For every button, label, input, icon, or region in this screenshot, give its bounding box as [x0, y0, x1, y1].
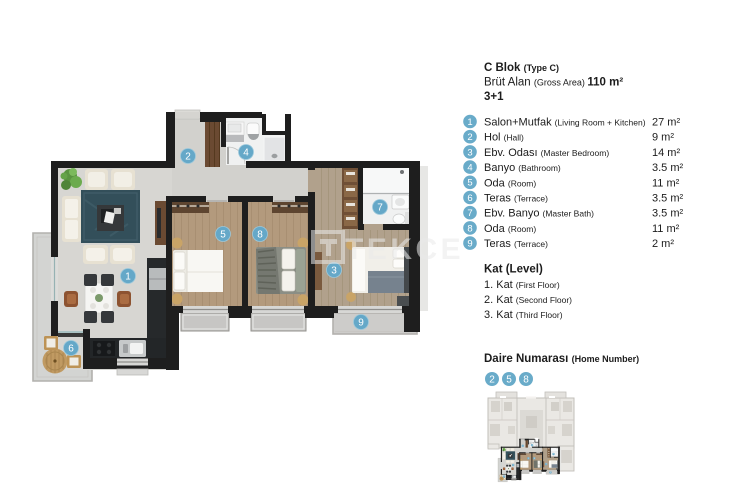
svg-text:11 m²: 11 m² — [652, 223, 680, 235]
svg-text:Ebv. Odası (Master Bedroom): Ebv. Odası (Master Bedroom) — [484, 147, 609, 159]
svg-text:2: 2 — [489, 375, 495, 386]
svg-text:3: 3 — [467, 147, 472, 158]
svg-text:Hol (Hall): Hol (Hall) — [484, 132, 524, 144]
svg-text:3.5 m²: 3.5 m² — [652, 162, 684, 174]
svg-text:Brüt Alan (Gross Area) 110 m²: Brüt Alan (Gross Area) 110 m² — [484, 77, 623, 89]
svg-text:3. Kat (Third Floor): 3. Kat (Third Floor) — [484, 309, 563, 321]
svg-text:11 m²: 11 m² — [652, 177, 680, 189]
svg-text:Daire Numarası (Home Number): Daire Numarası (Home Number) — [484, 353, 639, 365]
svg-text:TEKCE: TEKCE — [345, 233, 464, 266]
svg-text:27 m²: 27 m² — [652, 117, 680, 129]
svg-text:3.5 m²: 3.5 m² — [652, 193, 684, 205]
svg-text:Ebv. Banyo (Master Bath): Ebv. Banyo (Master Bath) — [484, 208, 594, 220]
svg-text:1: 1 — [467, 117, 472, 128]
svg-text:C Blok (Type C): C Blok (Type C) — [484, 62, 559, 74]
svg-text:6: 6 — [467, 193, 472, 204]
svg-text:Oda (Room): Oda (Room) — [484, 223, 536, 235]
svg-text:5: 5 — [506, 375, 512, 386]
svg-text:7: 7 — [467, 208, 472, 219]
svg-text:Banyo (Bathroom): Banyo (Bathroom) — [484, 162, 561, 174]
svg-text:Oda (Room): Oda (Room) — [484, 177, 536, 189]
svg-text:8: 8 — [523, 375, 529, 386]
svg-text:Kat (Level): Kat (Level) — [484, 264, 543, 276]
svg-text:2: 2 — [467, 132, 472, 143]
svg-text:9: 9 — [467, 239, 472, 250]
svg-text:Salon+Mutfak (Living Room + Ki: Salon+Mutfak (Living Room + Kitchen) — [484, 117, 646, 129]
svg-text:5: 5 — [467, 178, 472, 189]
svg-text:8: 8 — [467, 223, 472, 234]
svg-text:2. Kat (Second Floor): 2. Kat (Second Floor) — [484, 294, 572, 306]
svg-text:3+1: 3+1 — [484, 91, 504, 103]
svg-text:14 m²: 14 m² — [652, 147, 680, 159]
svg-text:9 m²: 9 m² — [652, 132, 674, 144]
svg-text:Teras (Terrace): Teras (Terrace) — [484, 193, 548, 205]
svg-text:3.5 m²: 3.5 m² — [652, 208, 684, 220]
svg-text:Teras (Terrace): Teras (Terrace) — [484, 238, 548, 250]
svg-text:1. Kat (First Floor): 1. Kat (First Floor) — [484, 279, 560, 291]
svg-text:4: 4 — [467, 163, 472, 174]
svg-text:2 m²: 2 m² — [652, 238, 674, 250]
